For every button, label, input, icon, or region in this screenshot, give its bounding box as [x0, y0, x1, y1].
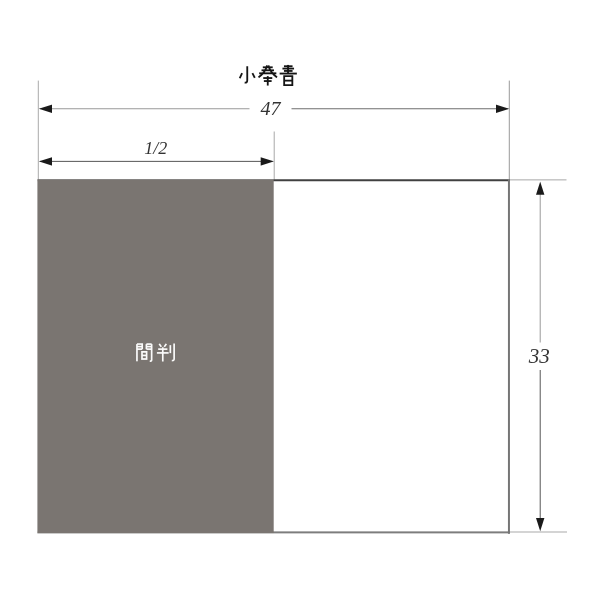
svg-text:47: 47 — [261, 98, 282, 120]
svg-text:33: 33 — [528, 344, 550, 368]
svg-text:1/2: 1/2 — [144, 138, 167, 158]
